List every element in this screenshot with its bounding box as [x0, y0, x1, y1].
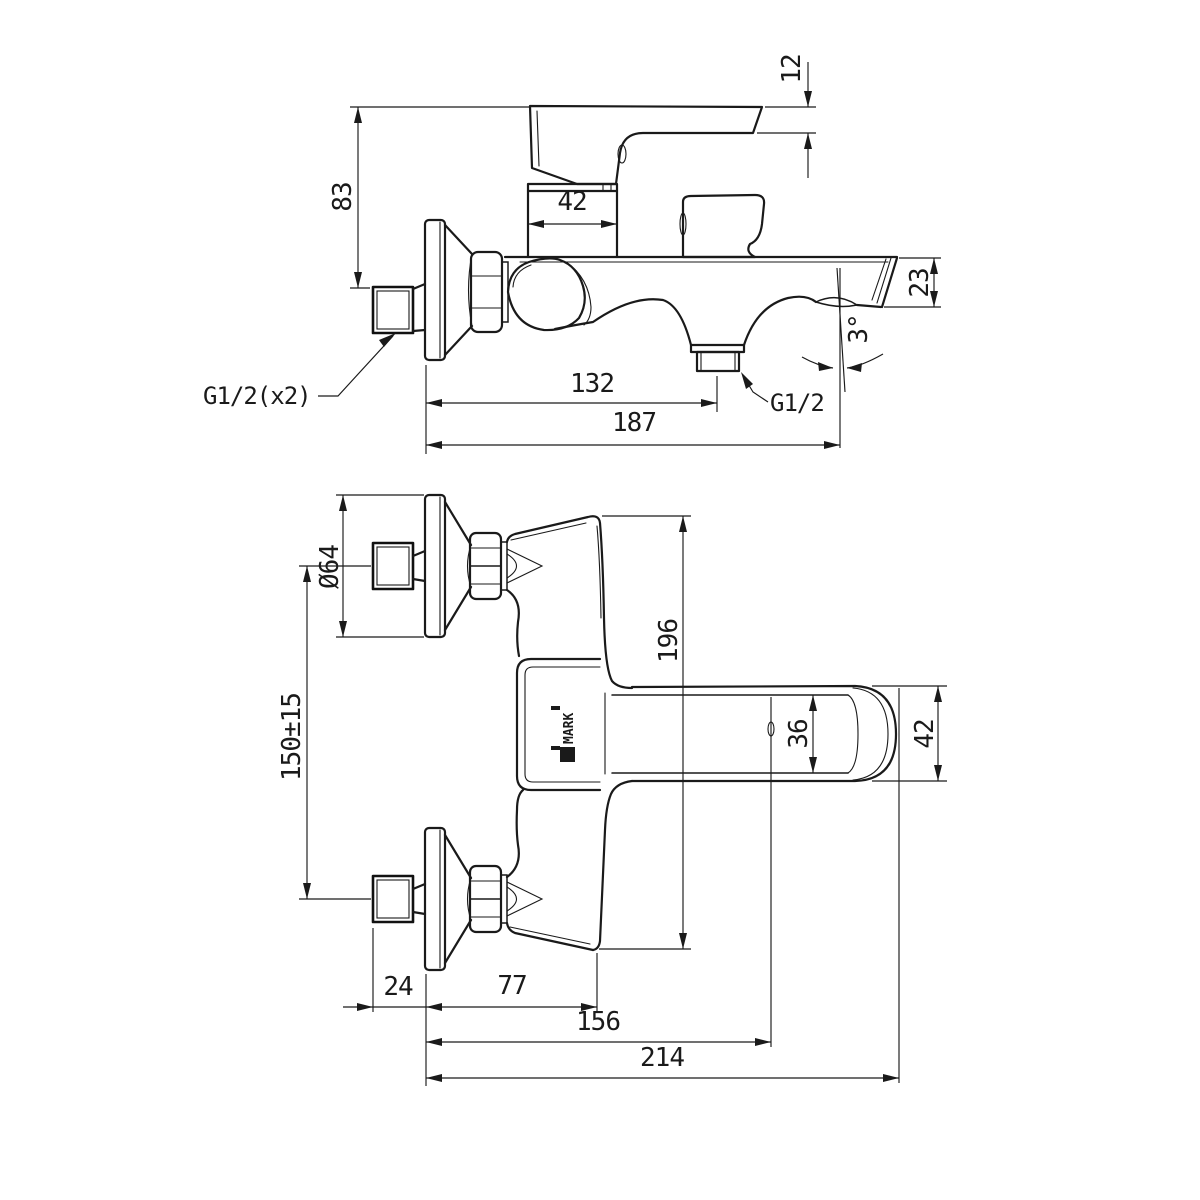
- dim-label: 77: [497, 971, 526, 1001]
- thread-label: G1/2(x2): [203, 382, 311, 410]
- brand-logo: L MARK: [551, 706, 577, 762]
- faucet-technical-drawing: 12 83 42 23: [0, 0, 1200, 1200]
- dim-label: 42: [910, 719, 940, 748]
- dim-handle-thickness: 12: [757, 54, 816, 178]
- dim-label: 23: [905, 268, 935, 297]
- dim-label: 156: [576, 1007, 620, 1037]
- logo-letter: L: [561, 751, 576, 759]
- dim-wall-to-body-end: 77: [426, 953, 597, 1012]
- dim-spout-end-height: 23: [884, 258, 941, 307]
- dim-handle-width: 36: [784, 695, 817, 773]
- upper-wall-connection: [373, 495, 542, 637]
- dim-body-length: 196: [599, 516, 691, 949]
- shower-thread-callout: G1/2: [741, 372, 824, 417]
- dim-wall-to-spout: 156: [426, 697, 771, 1047]
- front-view: L MARK Ø64 150±15 196: [277, 495, 947, 1086]
- dim-label: 132: [570, 369, 614, 399]
- dim-label: 36: [784, 719, 814, 748]
- shower-outlet: [691, 345, 744, 371]
- dim-body-width: 42: [528, 187, 617, 228]
- angle-label: 3°: [844, 314, 874, 343]
- drawing-sheet: 12 83 42 23: [0, 0, 1200, 1200]
- dim-label: 187: [612, 408, 656, 438]
- dim-label: 83: [328, 182, 358, 211]
- dim-overall-length: 214: [426, 688, 899, 1083]
- dim-label: 42: [557, 187, 586, 217]
- thread-label: G1/2: [770, 389, 824, 417]
- dim-handle-end-width: 42: [872, 686, 947, 781]
- dim-handle-height: 83: [328, 107, 530, 288]
- dim-label: 24: [383, 972, 413, 1002]
- logo-text: MARK: [562, 713, 577, 744]
- dim-spout-angle: 3°: [802, 268, 883, 448]
- dim-wall-to-shower-outlet: 132: [426, 365, 717, 454]
- inlet-thread-callout: G1/2(x2): [203, 333, 396, 410]
- lever-handle: [530, 106, 762, 184]
- dim-label: 196: [654, 619, 684, 663]
- dim-label: 214: [640, 1043, 684, 1073]
- dim-label: Ø64: [315, 545, 345, 589]
- spout-body: [505, 257, 897, 345]
- wall-connection: [373, 220, 591, 360]
- dim-inlet-offset: 24: [343, 928, 426, 1086]
- side-view: 12 83 42 23: [203, 54, 941, 454]
- dim-inlet-spacing: 150±15: [277, 566, 371, 899]
- lower-wall-connection: [373, 828, 542, 970]
- dim-label: 150±15: [277, 693, 307, 781]
- diverter-knob: [680, 195, 764, 257]
- dim-label: 12: [777, 54, 807, 83]
